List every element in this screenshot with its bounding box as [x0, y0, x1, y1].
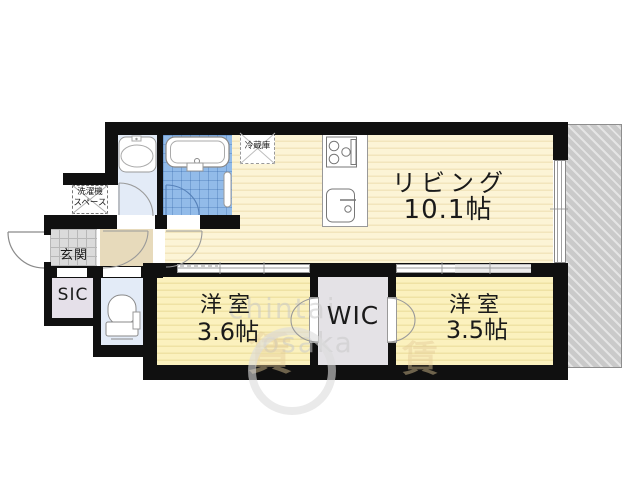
- sliding-door-right: [396, 264, 531, 273]
- bathroom-floor: [163, 135, 232, 215]
- bedroom-left-size: 3.6帖: [188, 320, 268, 345]
- wall-bottom: [143, 365, 568, 380]
- living-window: [554, 160, 566, 263]
- balcony-area: [560, 124, 622, 368]
- wall-bedroom-left-side: [143, 266, 157, 380]
- toilet-door-opening: [103, 267, 141, 277]
- floorplan-canvas: chintai osaka 賃 賃: [0, 0, 640, 480]
- bedroom-left-label: 洋室: [188, 294, 268, 317]
- fridge-label: 冷蔵庫: [241, 142, 274, 151]
- wic-label: WIC: [320, 303, 386, 329]
- wall-top: [105, 122, 565, 135]
- bathroom-door-opening: [167, 215, 200, 229]
- washroom-floor: [118, 135, 157, 215]
- wall-bath-divider: [157, 135, 163, 215]
- sic-label: SIC: [54, 287, 92, 305]
- washer-space-label-1: 洗濯機: [73, 187, 107, 198]
- wall-sic-toilet: [93, 266, 101, 357]
- sliding-door-left: [177, 264, 310, 273]
- hall-entrance-divider: [97, 229, 100, 266]
- hallway-floor: [100, 229, 153, 266]
- bedroom-right-label: 洋室: [437, 294, 517, 317]
- bedroom-right-size: 3.5帖: [437, 318, 517, 343]
- living-room-label: リビング: [392, 171, 504, 196]
- washer-space-label-2: スペース: [71, 198, 109, 209]
- kitchen-counter: [322, 131, 368, 227]
- wall-washer-top: [63, 173, 118, 185]
- sic-opening: [57, 268, 87, 277]
- wall-door-jamb-top: [44, 215, 51, 235]
- wall-right-upper: [553, 122, 568, 160]
- wic-right-door-jamb: [387, 297, 397, 343]
- front-door-swing-icon: [8, 232, 44, 268]
- living-room-size: 10.1帖: [392, 197, 504, 224]
- washroom-door-opening: [117, 215, 155, 229]
- entrance-label: 玄関: [55, 249, 93, 263]
- wall-right-lower: [553, 263, 568, 380]
- watermark-stamp-2: 賃: [402, 330, 438, 382]
- toilet-floor: [101, 277, 143, 345]
- hall-living-doorway: [153, 229, 165, 266]
